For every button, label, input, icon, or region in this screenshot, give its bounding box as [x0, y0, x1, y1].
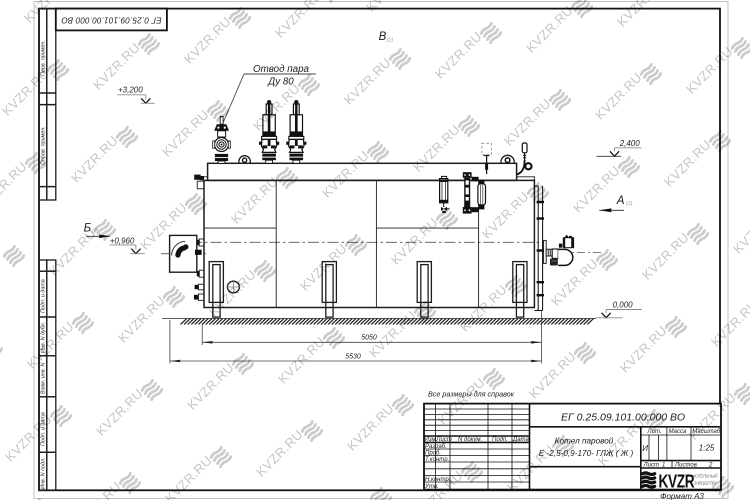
svg-text:КОТЕЛЬНЫЙ: КОТЕЛЬНЫЙ: [693, 471, 718, 478]
svg-text:KVZR: KVZR: [659, 472, 695, 492]
svg-text:Инв. N подл.: Инв. N подл.: [41, 457, 47, 489]
svg-text:И: И: [642, 444, 648, 453]
svg-text:2,400: 2,400: [619, 139, 641, 148]
svg-text:Масса: Масса: [669, 429, 687, 435]
svg-text:1: 1: [662, 462, 665, 468]
svg-text:5530: 5530: [345, 353, 361, 360]
svg-text:+3,200: +3,200: [118, 86, 143, 95]
svg-text:Отвод пара: Отвод пара: [253, 64, 310, 75]
svg-text:1:25: 1:25: [699, 444, 715, 453]
svg-text:Т.контр.: Т.контр.: [425, 457, 449, 463]
svg-text:Формат А3: Формат А3: [660, 492, 704, 500]
svg-text:А: А: [616, 195, 625, 207]
svg-text:Лист: Лист: [435, 437, 451, 443]
svg-text:Подп. и дата: Подп. и дата: [41, 279, 47, 313]
svg-text:0,000: 0,000: [613, 300, 634, 309]
svg-text:(2): (2): [387, 38, 394, 44]
svg-text:Дата: Дата: [512, 437, 529, 443]
svg-text:Взам. инв. N: Взам. инв. N: [41, 362, 47, 394]
svg-text:ЗАВОД РЭП: ЗАВОД РЭП: [694, 481, 717, 486]
svg-text:Листов: Листов: [674, 462, 697, 468]
svg-text:ЕГ 0.25.09.101.00.000 ВО: ЕГ 0.25.09.101.00.000 ВО: [61, 16, 162, 25]
svg-text:Проб.: Проб.: [425, 451, 441, 457]
svg-text:ЕГ 0.25.09.101.00.000 ВО: ЕГ 0.25.09.101.00.000 ВО: [561, 411, 685, 423]
svg-text:N докум.: N докум.: [458, 437, 482, 443]
svg-text:В: В: [379, 31, 387, 43]
svg-text:Подп.: Подп.: [492, 437, 508, 443]
svg-text:(2): (2): [626, 201, 633, 207]
svg-text:2: 2: [708, 462, 713, 468]
svg-text:+0,960: +0,960: [110, 236, 135, 245]
svg-text:Лист: Лист: [643, 462, 659, 468]
svg-text:Разраб.: Разраб.: [425, 444, 447, 450]
